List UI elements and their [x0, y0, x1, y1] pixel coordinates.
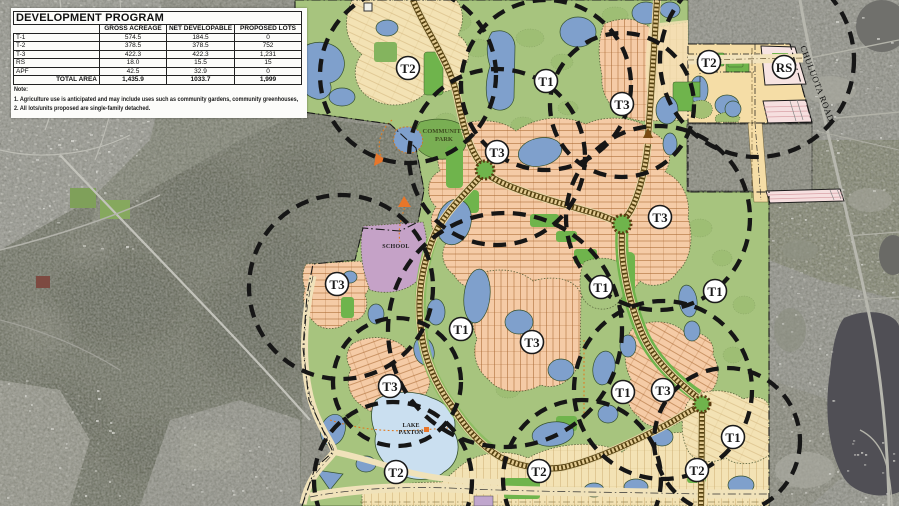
- svg-text:T1: T1: [707, 284, 722, 299]
- svg-text:T3: T3: [382, 379, 398, 394]
- svg-text:T1: T1: [593, 280, 608, 295]
- svg-text:T3: T3: [524, 335, 540, 350]
- svg-text:T2: T2: [531, 464, 546, 479]
- svg-text:T2: T2: [689, 463, 704, 478]
- svg-text:COMMUNITY: COMMUNITY: [423, 128, 466, 135]
- svg-text:T1: T1: [725, 430, 740, 445]
- svg-text:T2: T2: [701, 55, 716, 70]
- svg-text:T3: T3: [329, 277, 345, 292]
- svg-text:T3: T3: [655, 383, 671, 398]
- svg-text:T2: T2: [400, 61, 415, 76]
- svg-text:T1: T1: [453, 322, 468, 337]
- svg-text:PAXTON: PAXTON: [399, 430, 424, 436]
- svg-text:SCHOOL: SCHOOL: [382, 244, 409, 250]
- svg-text:T3: T3: [614, 97, 630, 112]
- svg-text:T3: T3: [489, 145, 505, 160]
- svg-text:T2: T2: [388, 465, 403, 480]
- svg-text:PARK: PARK: [435, 136, 453, 143]
- svg-text:T1: T1: [538, 74, 553, 89]
- svg-text:T1: T1: [615, 385, 630, 400]
- svg-text:RS: RS: [776, 60, 793, 75]
- svg-text:T3: T3: [652, 210, 668, 225]
- svg-text:LAKE: LAKE: [402, 423, 419, 429]
